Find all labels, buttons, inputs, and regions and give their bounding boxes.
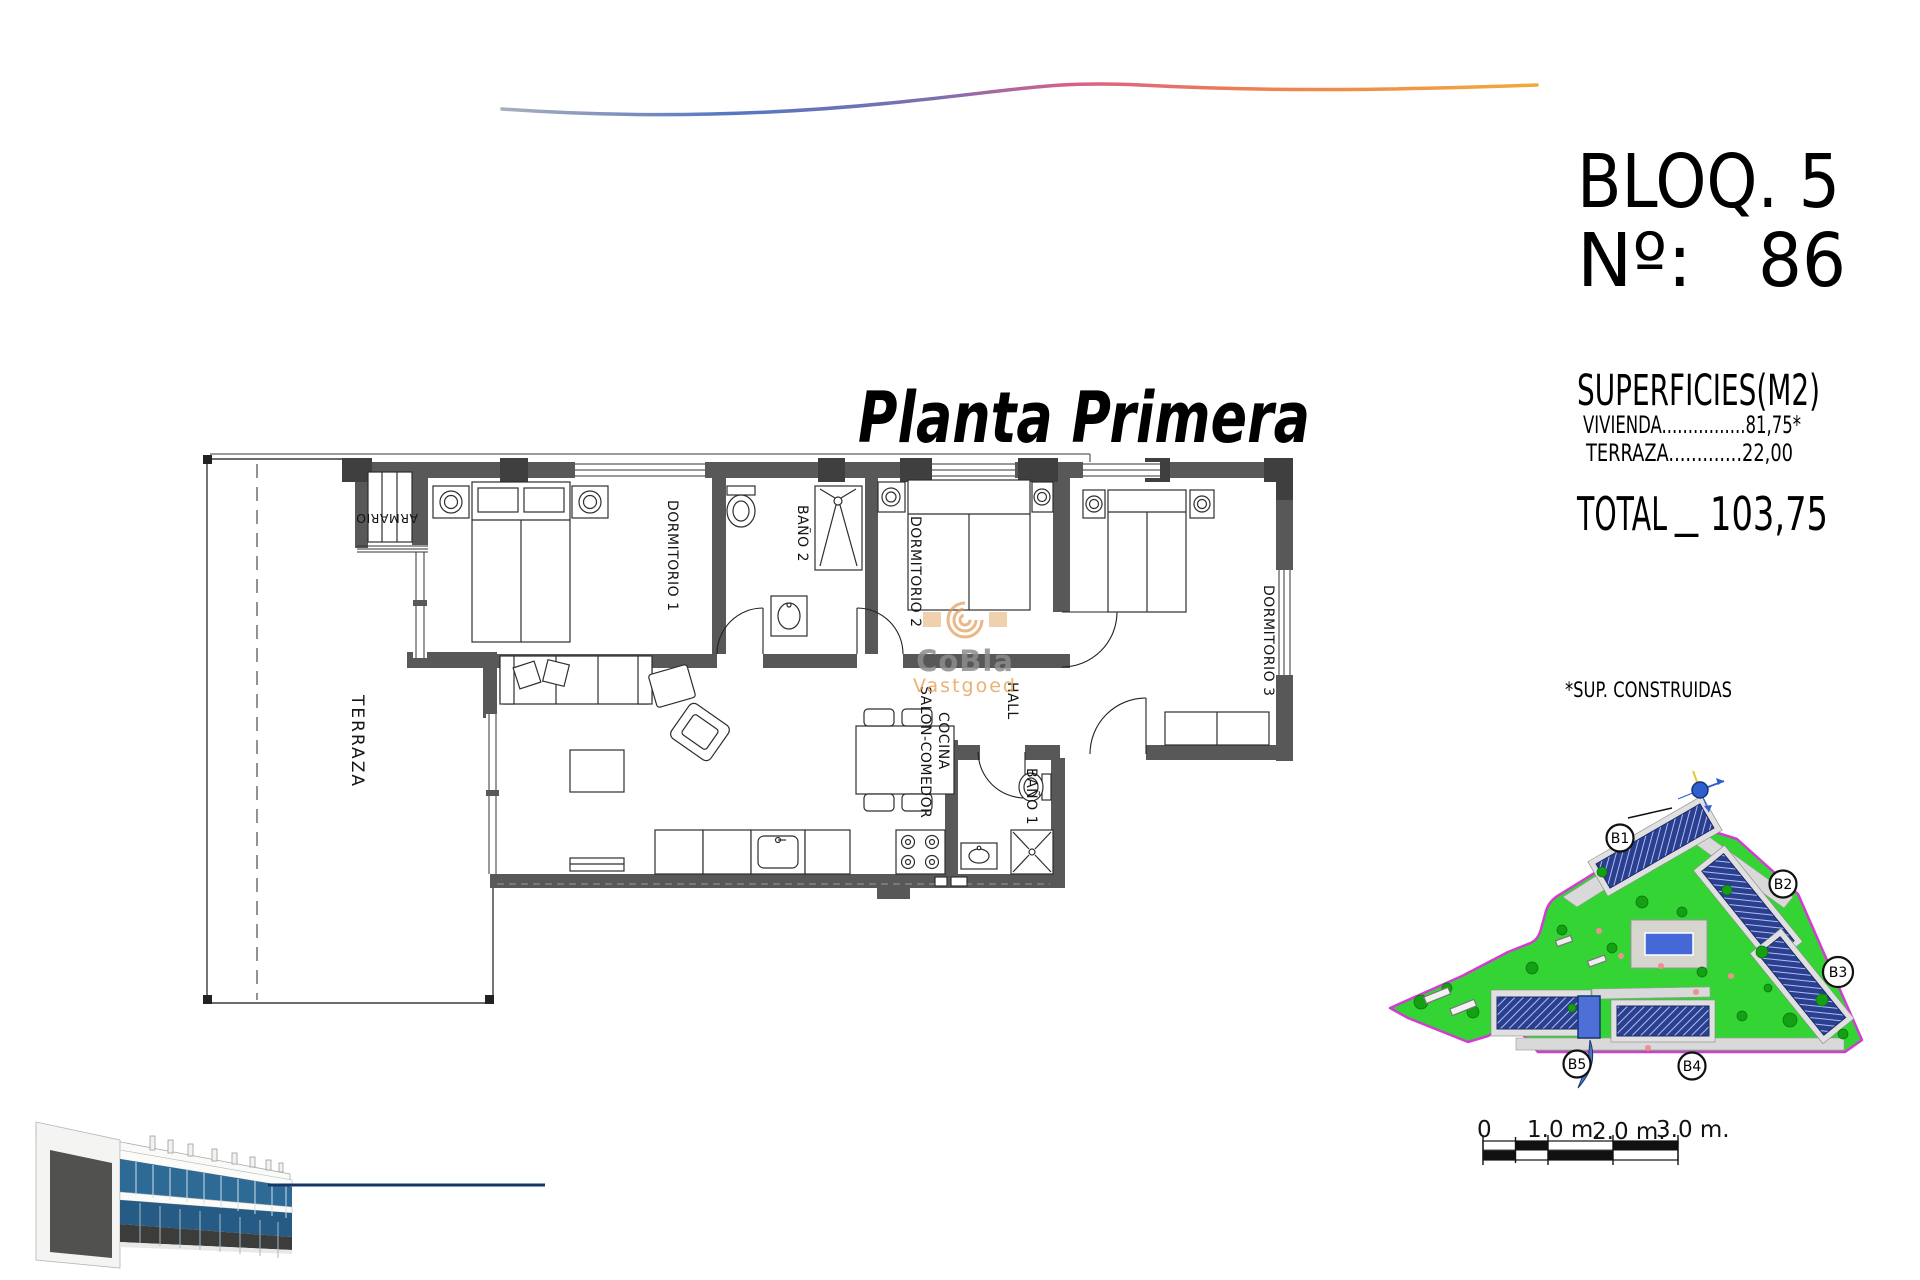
total-separator: _ <box>1674 483 1699 537</box>
unit-number-label: Nº: <box>1577 218 1692 304</box>
badge-b3: B3 <box>1823 957 1853 987</box>
label-armario: ARMARIO <box>356 511 418 526</box>
svg-text:B4: B4 <box>1683 1059 1702 1075</box>
dorm3-furniture <box>1083 490 1269 745</box>
floor-plan: Planta Primera <box>185 370 1335 1020</box>
scale-3m: 3.0 m. <box>1656 1117 1730 1143</box>
label-dormitorio2: DORMITORIO 2 <box>907 516 923 628</box>
scale-0: 0 <box>1477 1117 1492 1143</box>
swoosh-curve <box>502 84 1537 115</box>
label-salon: SALON-COMEDOR <box>917 686 933 818</box>
badge-b2: B2 <box>1770 871 1797 898</box>
total-label: TOTAL <box>1576 487 1667 541</box>
furniture-layer <box>368 472 1269 886</box>
svg-text:B1: B1 <box>1611 831 1630 847</box>
unit-number-value: 86 <box>1758 218 1846 304</box>
label-dormitorio1: DORMITORIO 1 <box>664 500 680 612</box>
label-terraza: TERRAZA <box>347 694 367 788</box>
site-pool <box>1631 920 1707 968</box>
badge-b4: B4 <box>1679 1053 1706 1080</box>
dorm2-furniture <box>878 480 1053 610</box>
scale-bar: 0 1.0 m. 2.0 m. 3.0 m. <box>1460 1100 1780 1180</box>
superficies-row-vivienda: VIVIENDA................81,75* <box>1583 411 1801 439</box>
site-plan: B1 B2 B3 B4 B5 <box>1378 748 1893 1113</box>
title-block: BLOQ. 5 Nº: 86 SUPERFICIES(M2) VIVIENDA.… <box>1560 100 1905 720</box>
label-cocina: COCINA <box>935 712 951 770</box>
scale-1m: 1.0 m. <box>1527 1117 1601 1143</box>
svg-text:B3: B3 <box>1829 965 1848 981</box>
label-dormitorio3: DORMITORIO 3 <box>1260 585 1276 697</box>
building-massing <box>36 1122 292 1268</box>
label-bano2: BAÑO 2 <box>794 505 811 562</box>
superficies-heading: SUPERFICIES(M2) <box>1577 366 1820 416</box>
building-render <box>20 1095 580 1280</box>
armario-closet <box>368 472 412 542</box>
gradient-swoosh <box>440 40 1590 140</box>
svg-text:B2: B2 <box>1774 877 1793 893</box>
total-value: 103,75 <box>1710 487 1828 541</box>
label-bano1: BAÑO 1 <box>1023 768 1040 825</box>
floor-title: Planta Primera <box>858 377 1310 459</box>
block-label: BLOQ. 5 <box>1577 139 1840 225</box>
svg-text:B5: B5 <box>1568 1057 1587 1073</box>
superficies-row-terraza: TERRAZA.............22,00 <box>1585 439 1793 467</box>
plan-sheet-page: BLOQ. 5 Nº: 86 SUPERFICIES(M2) VIVIENDA.… <box>0 0 1920 1280</box>
badge-b1: B1 <box>1607 825 1634 852</box>
label-hall: HALL <box>1004 682 1020 720</box>
footnote-sup-construidas: *SUP. CONSTRUIDAS <box>1565 678 1732 702</box>
badge-b5: B5 <box>1564 1051 1591 1078</box>
site-access-marker <box>1628 808 1672 818</box>
highlighted-block-5 <box>1578 996 1600 1038</box>
dorm1-furniture <box>433 482 608 642</box>
